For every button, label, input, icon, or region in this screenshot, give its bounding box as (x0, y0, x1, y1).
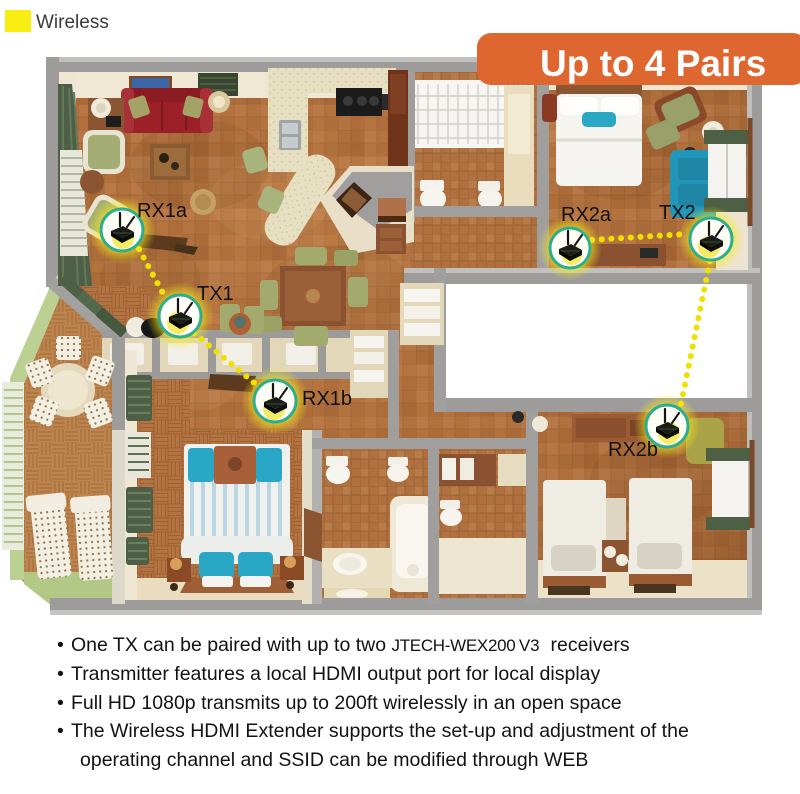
svg-text:Wireless: Wireless (36, 12, 109, 33)
svg-text:RX2b: RX2b (608, 439, 658, 461)
svg-text:Up to 4 Pairs: Up to 4 Pairs (540, 43, 766, 84)
svg-text:TX2: TX2 (659, 202, 696, 224)
svg-text:RX1a: RX1a (137, 200, 188, 222)
svg-text:RX2a: RX2a (561, 204, 612, 226)
svg-text:TX1: TX1 (197, 283, 234, 305)
svg-text:RX1b: RX1b (302, 388, 352, 410)
